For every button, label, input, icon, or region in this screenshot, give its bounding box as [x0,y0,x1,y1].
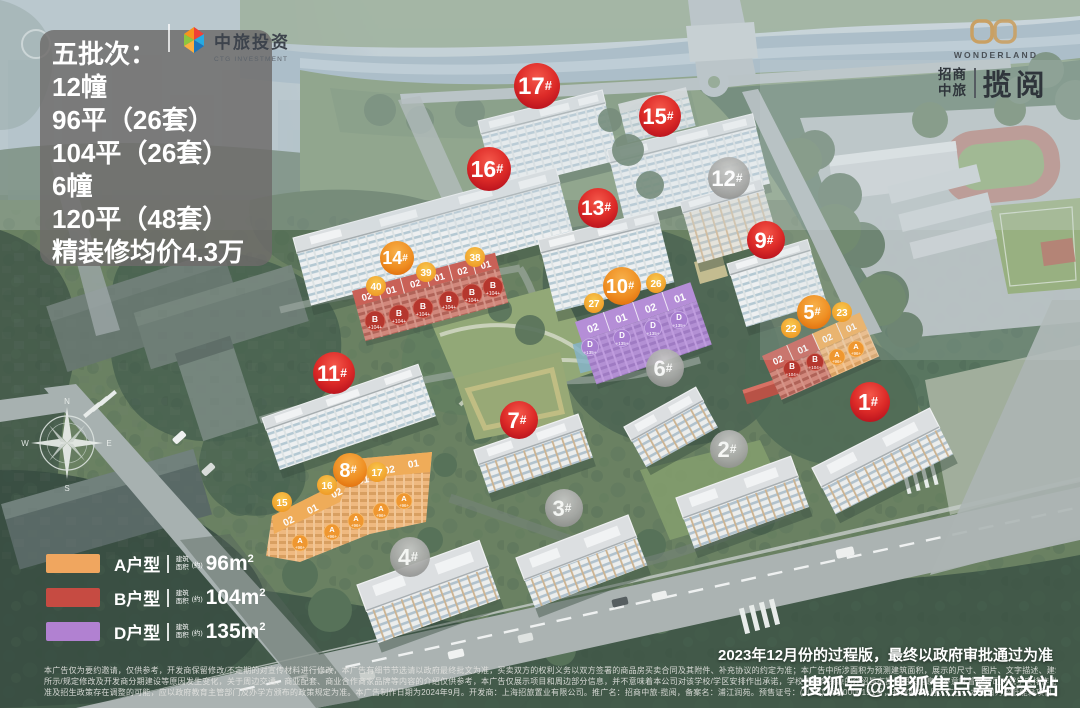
svg-text:+104+: +104+ [809,365,822,370]
svg-text:+104+: +104+ [368,325,382,331]
svg-text:26: 26 [650,279,662,290]
svg-text:23: 23 [836,308,848,319]
svg-text:A: A [853,342,859,351]
svg-text:A: A [834,350,840,359]
svg-text:A: A [297,536,303,545]
svg-text:+135+: +135+ [584,350,597,355]
svg-text:38: 38 [469,253,481,264]
svg-text:A: A [329,525,335,534]
svg-text:+96+: +96+ [327,534,338,539]
svg-text:+104+: +104+ [465,298,479,304]
svg-text:27: 27 [588,299,600,310]
svg-text:39: 39 [420,268,432,279]
svg-text:+135+: +135+ [673,323,686,328]
svg-text:B: B [446,294,452,304]
svg-text:D: D [587,340,593,349]
svg-text:A: A [378,504,384,513]
svg-text:16: 16 [321,481,333,492]
svg-text:+104+: +104+ [486,291,500,297]
svg-text:A: A [401,494,407,503]
svg-text:+104+: +104+ [442,305,456,311]
svg-text:+96+: +96+ [295,545,306,550]
svg-text:+96+: +96+ [399,503,410,508]
svg-text:D: D [650,321,656,330]
svg-text:B: B [372,314,378,324]
svg-text:+104+: +104+ [392,319,406,325]
svg-text:B: B [490,280,496,290]
svg-text:B: B [469,287,475,297]
svg-text:+135+: +135+ [616,341,629,346]
svg-text:D: D [619,331,625,340]
svg-text:+96+: +96+ [832,359,843,364]
svg-text:17: 17 [371,468,383,479]
svg-text:22: 22 [785,324,797,335]
svg-text:B: B [420,301,426,311]
svg-text:40: 40 [370,282,382,293]
svg-text:A: A [353,514,359,523]
svg-text:B: B [396,308,402,318]
svg-text:+96+: +96+ [851,351,862,356]
svg-text:+96+: +96+ [376,513,387,518]
svg-text:+104+: +104+ [786,372,799,377]
svg-text:+135+: +135+ [647,331,660,336]
svg-text:D: D [676,313,682,322]
svg-text:15: 15 [276,498,288,509]
svg-text:B: B [789,362,795,371]
svg-text:+96+: +96+ [351,523,362,528]
svg-text:+104+: +104+ [416,312,430,318]
svg-text:B: B [812,355,818,364]
